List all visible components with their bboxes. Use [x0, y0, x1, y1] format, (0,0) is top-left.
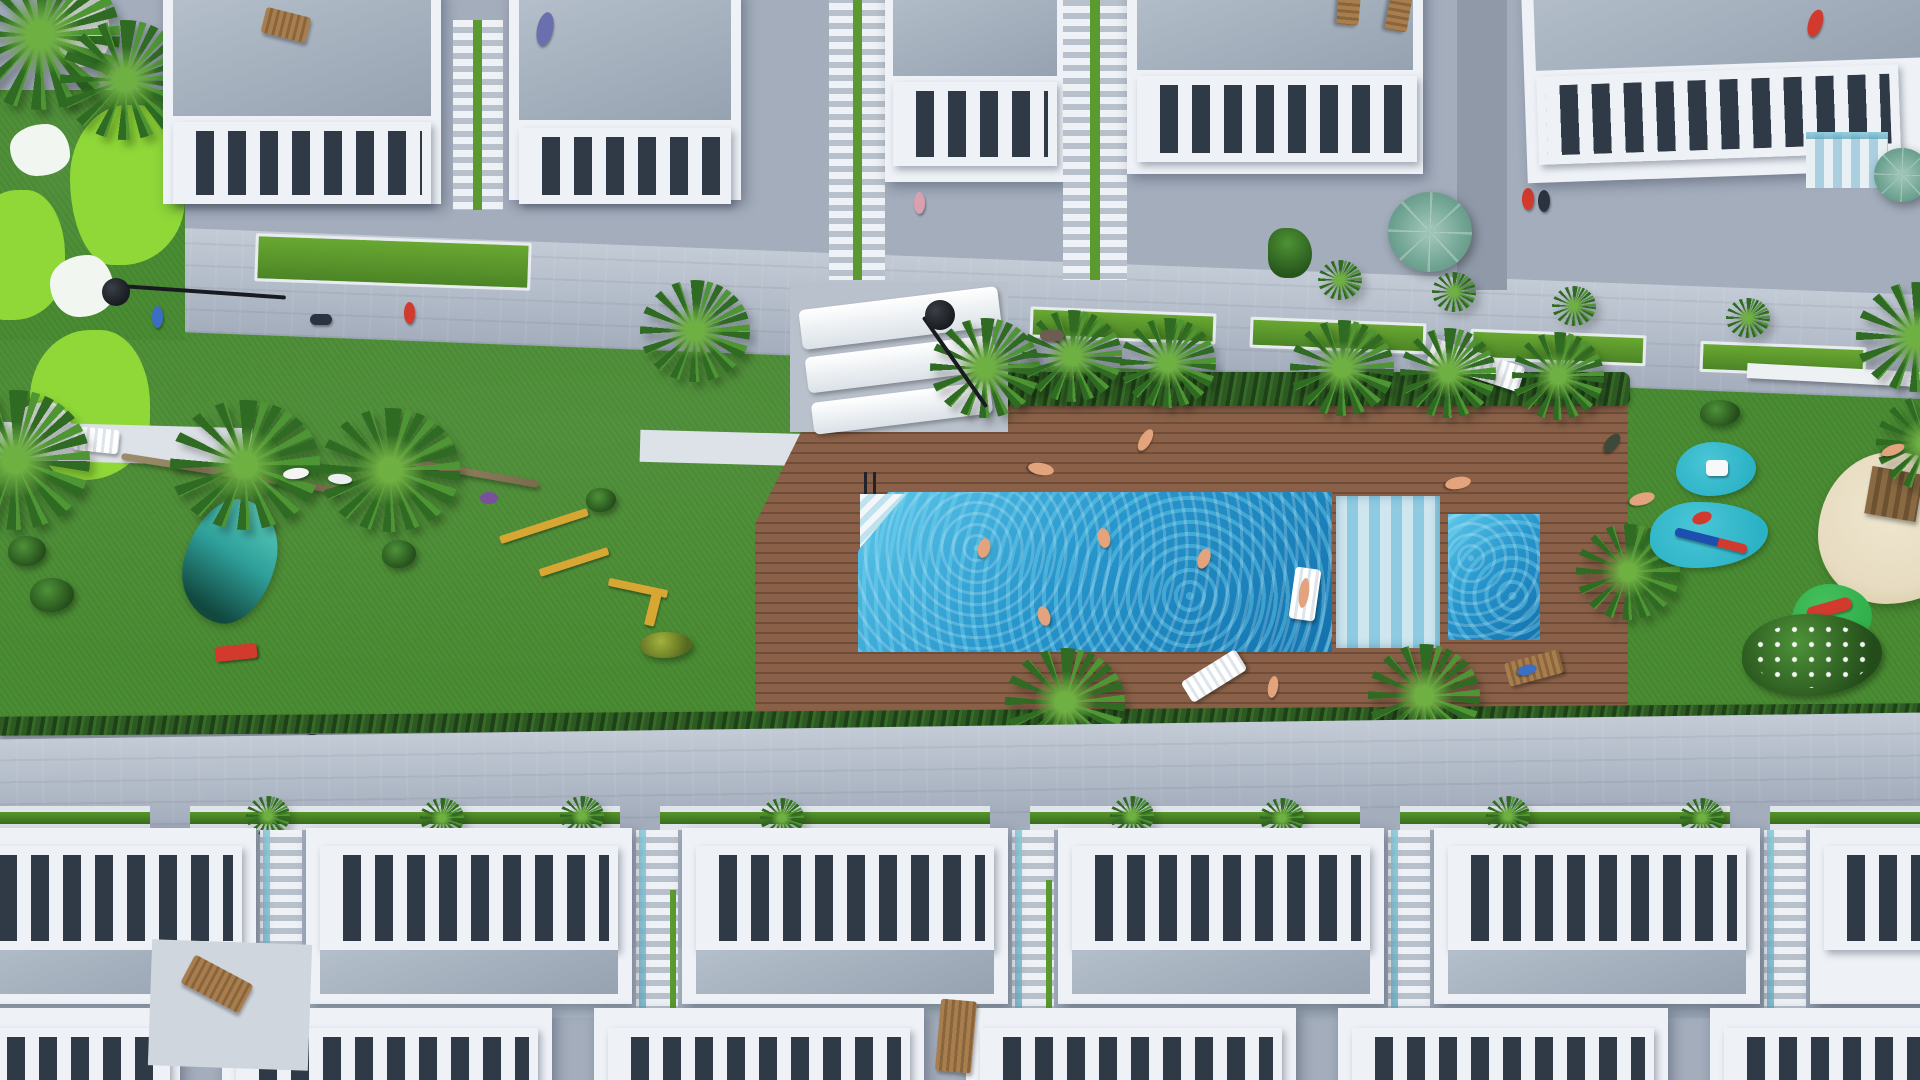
garden-path	[640, 430, 813, 466]
townhouse-block	[885, 0, 1065, 182]
terrace-railing	[1824, 846, 1920, 950]
pedestrian	[914, 192, 925, 214]
townhouse-block	[682, 828, 1008, 1004]
roof-lounger-wood	[1336, 0, 1361, 26]
palm-tree	[1290, 320, 1394, 416]
terrace-railing	[320, 846, 618, 950]
townhouse-block	[1434, 828, 1760, 1004]
terrace-railing	[1448, 846, 1746, 950]
planter-hedge	[1030, 812, 1360, 824]
planter-strip	[1770, 806, 1920, 830]
aerial-render-canvas	[0, 0, 1920, 1080]
main-pool	[858, 492, 1332, 652]
terrace-railing	[608, 1028, 910, 1080]
roof-terrace	[1137, 0, 1413, 70]
cyclist	[310, 314, 332, 325]
stairwell	[453, 20, 503, 210]
planter-hedge	[660, 812, 990, 824]
roof-terrace	[893, 0, 1057, 76]
spring-rider-car	[1706, 460, 1728, 476]
parasol	[1874, 148, 1920, 202]
terrace-railing	[1352, 1028, 1654, 1080]
walkway-plant	[1726, 298, 1770, 338]
walkway-plant	[1432, 272, 1476, 312]
townhouse-block	[163, 0, 441, 204]
terrace-railing	[173, 122, 431, 204]
stairwell-green-strip	[1090, 0, 1100, 280]
terrace-railing	[0, 1028, 170, 1080]
townhouse-block	[509, 0, 741, 200]
street-lamp	[102, 278, 130, 306]
pool-wide-steps	[1336, 496, 1440, 648]
terrace-railing	[696, 846, 994, 950]
terrace-bench-wood	[935, 999, 977, 1074]
townhouse-block	[594, 1008, 924, 1080]
townhouse-block	[1127, 0, 1423, 174]
palm-tree	[1022, 310, 1122, 402]
palm-tree	[170, 400, 320, 530]
stairs-green-strip	[1046, 880, 1052, 1020]
palm-tree	[1120, 318, 1216, 408]
sand-bunker	[10, 124, 70, 176]
planter-hedge	[0, 812, 150, 824]
townhouse-block	[1338, 1008, 1668, 1080]
pool-ladder	[864, 472, 876, 494]
townhouse-block	[1058, 828, 1384, 1004]
kids-pool	[1448, 514, 1540, 640]
flower-tuft	[480, 492, 498, 504]
stairwell	[1063, 0, 1127, 280]
stairwell	[829, 0, 885, 280]
townhouse-block	[1810, 828, 1920, 1004]
street-lamp	[925, 300, 955, 330]
stairs-green-strip	[670, 890, 676, 1010]
palm-tree	[1400, 328, 1496, 418]
planter-strip	[1030, 806, 1360, 830]
flowering-bush-blossoms	[1752, 622, 1872, 688]
pedestrian	[404, 302, 415, 324]
palm-tree	[320, 408, 460, 532]
terrace-railing	[519, 128, 731, 204]
walkway-lawn-strip	[254, 233, 532, 291]
terrace-railing	[1724, 1028, 1920, 1080]
townhouse-block	[966, 1008, 1296, 1080]
pedestrian	[1040, 330, 1064, 341]
roof-slab	[696, 950, 994, 994]
planter-strip	[660, 806, 990, 830]
terrace-railing	[1137, 76, 1417, 162]
glass-balustrade	[1806, 132, 1888, 139]
pedestrian-pair	[1538, 190, 1550, 212]
planter-strip	[0, 806, 150, 830]
terrace-railing	[980, 1028, 1282, 1080]
roof-terrace	[1533, 0, 1920, 71]
terrace-railing	[893, 82, 1057, 166]
townhouse-block	[306, 828, 632, 1004]
hanging-plant	[1268, 228, 1312, 278]
walkway-plant	[1552, 286, 1596, 326]
roof-slab	[320, 950, 618, 994]
palm-tree	[640, 280, 750, 382]
pedestrian-pair	[1522, 188, 1534, 210]
stairwell-green-strip	[473, 20, 482, 210]
terrace-railing	[0, 846, 242, 950]
stairwell-green-strip	[853, 0, 862, 280]
planter-hedge	[1770, 812, 1920, 824]
walkway-plant	[1318, 260, 1362, 300]
townhouse-block	[1710, 1008, 1920, 1080]
parasol	[1388, 192, 1472, 272]
roof-slab	[1448, 950, 1746, 994]
terrace-railing	[1072, 846, 1370, 950]
roof-slab	[1072, 950, 1370, 994]
palm-tree	[1512, 332, 1604, 420]
pedestrian	[152, 306, 163, 328]
